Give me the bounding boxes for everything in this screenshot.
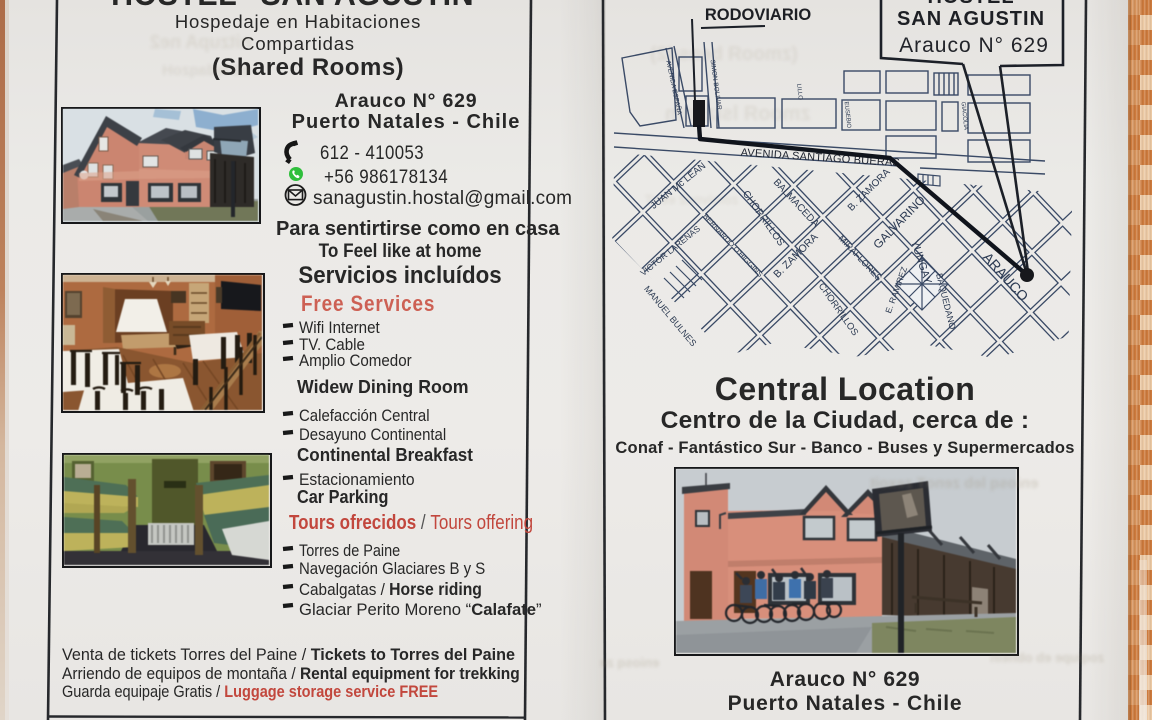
svg-text:SIMON BOLIVAR: SIMON BOLIVAR [708, 59, 722, 111]
svg-text:CHORRILLOS: CHORRILLOS [816, 281, 860, 338]
svg-text:RODOVIARIO: RODOVIARIO [705, 6, 812, 24]
svg-text:MANUEL BULNES: MANUEL BULNES [642, 284, 698, 348]
svg-text:AVENIDA ESPAÑA: AVENIDA ESPAÑA [664, 59, 684, 116]
svg-text:BERNARDO O'HIGGINS: BERNARDO O'HIGGINS [701, 212, 765, 279]
svg-text:Arauco N° 629: Arauco N° 629 [899, 34, 1049, 57]
svg-text:VICTOR LARENAS: VICTOR LARENAS [638, 223, 702, 278]
svg-text:LILLO: LILLO [795, 83, 803, 100]
svg-text:GIACOLIA: GIACOLIA [960, 101, 969, 130]
svg-text:EUSEBIO: EUSEBIO [843, 101, 852, 128]
svg-text:BAQUEDANO: BAQUEDANO [934, 272, 958, 330]
svg-text:JUAN Mc LEAN: JUAN Mc LEAN [649, 160, 709, 211]
svg-text:CHORRILLOS: CHORRILLOS [740, 189, 786, 249]
svg-text:HOSTEL: HOSTEL [927, 0, 1014, 8]
svg-text:SAN AGUSTIN: SAN AGUSTIN [897, 8, 1045, 30]
